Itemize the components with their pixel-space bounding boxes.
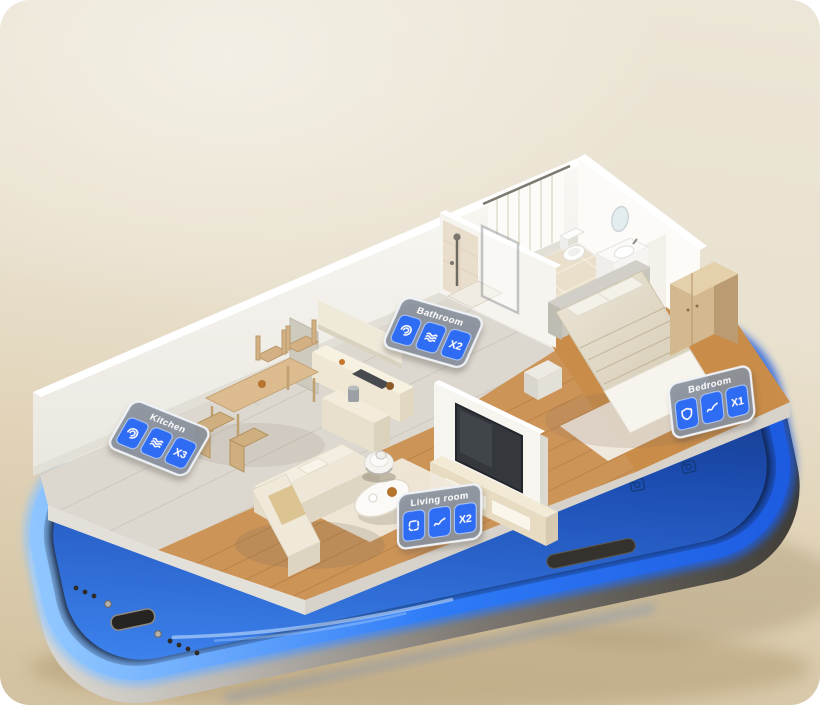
lidar-turret [376, 451, 386, 459]
room-badge-living-room[interactable]: Living room X2 [398, 483, 481, 549]
robot-vacuum [362, 451, 396, 483]
zone-button[interactable] [403, 509, 425, 541]
quiet-mode-button[interactable] [675, 397, 699, 431]
clean-count: X2 [459, 512, 472, 526]
marketing-render: Kitchen X3 Bathroom X2 Livin [0, 0, 820, 705]
